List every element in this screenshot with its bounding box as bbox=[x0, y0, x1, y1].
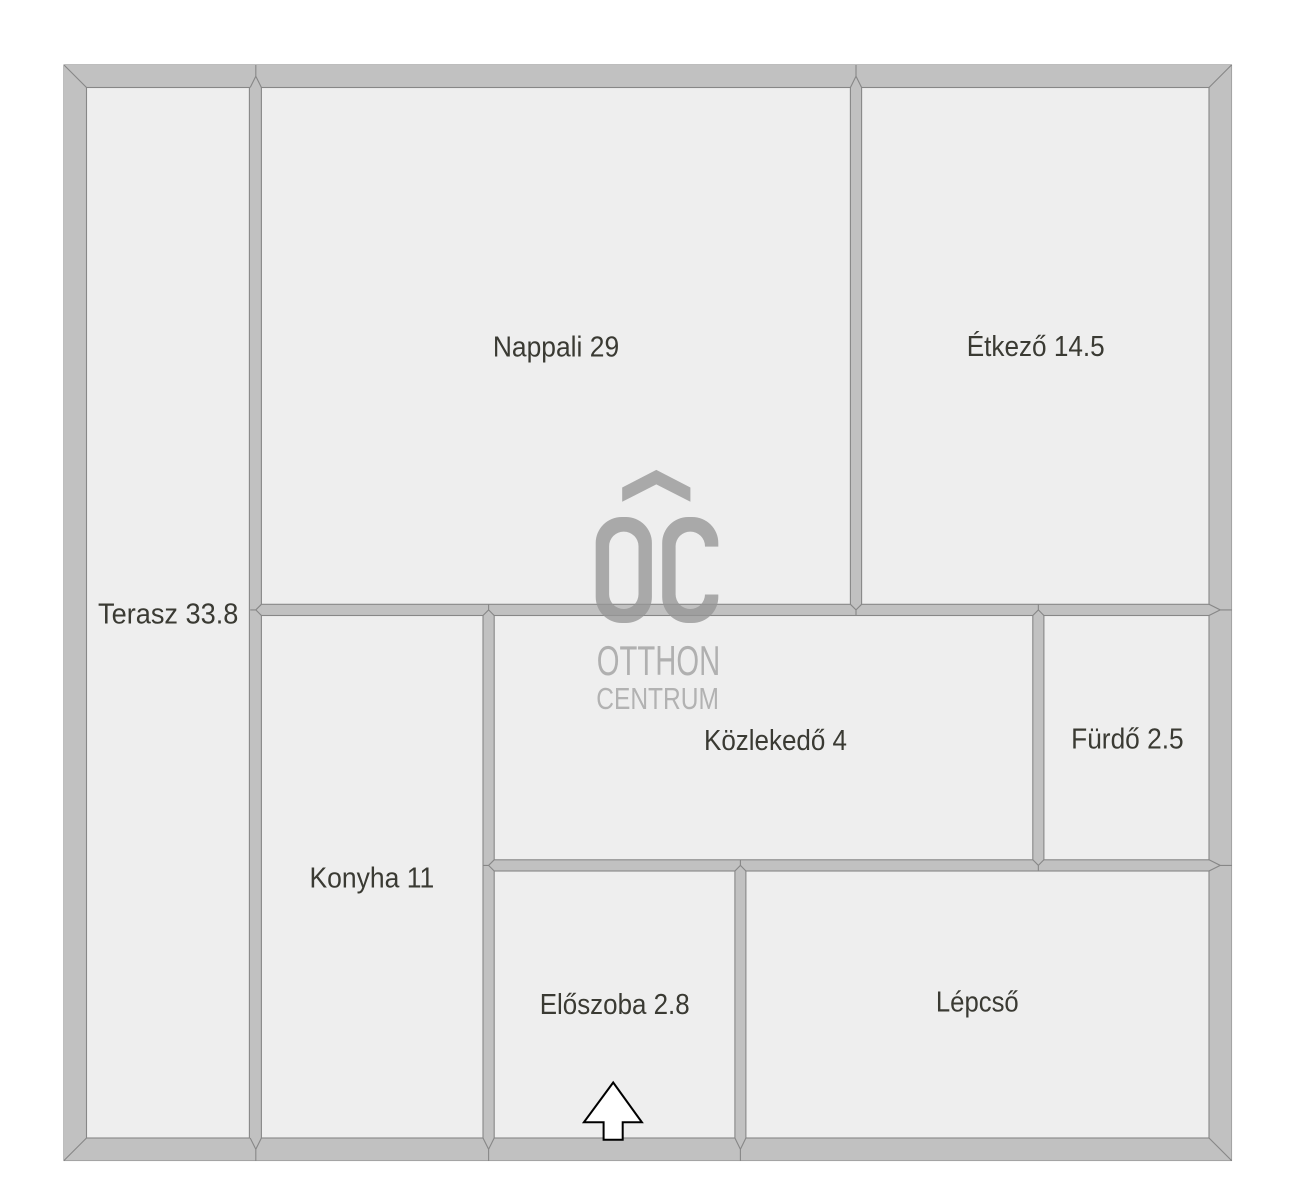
svg-text:CENTRUM: CENTRUM bbox=[596, 681, 719, 716]
svg-text:Előszoba 2.8: Előszoba 2.8 bbox=[540, 989, 690, 1021]
svg-text:Étkező 14.5: Étkező 14.5 bbox=[967, 330, 1105, 363]
svg-text:Közlekedő 4: Közlekedő 4 bbox=[704, 725, 847, 757]
svg-text:Terasz 33.8: Terasz 33.8 bbox=[98, 598, 238, 630]
svg-text:Nappali 29: Nappali 29 bbox=[493, 332, 619, 364]
svg-text:OTTHON: OTTHON bbox=[597, 637, 720, 684]
svg-text:Konyha 11: Konyha 11 bbox=[310, 863, 435, 895]
svg-text:Fürdő 2.5: Fürdő 2.5 bbox=[1071, 724, 1184, 756]
svg-text:Lépcső: Lépcső bbox=[936, 987, 1019, 1019]
